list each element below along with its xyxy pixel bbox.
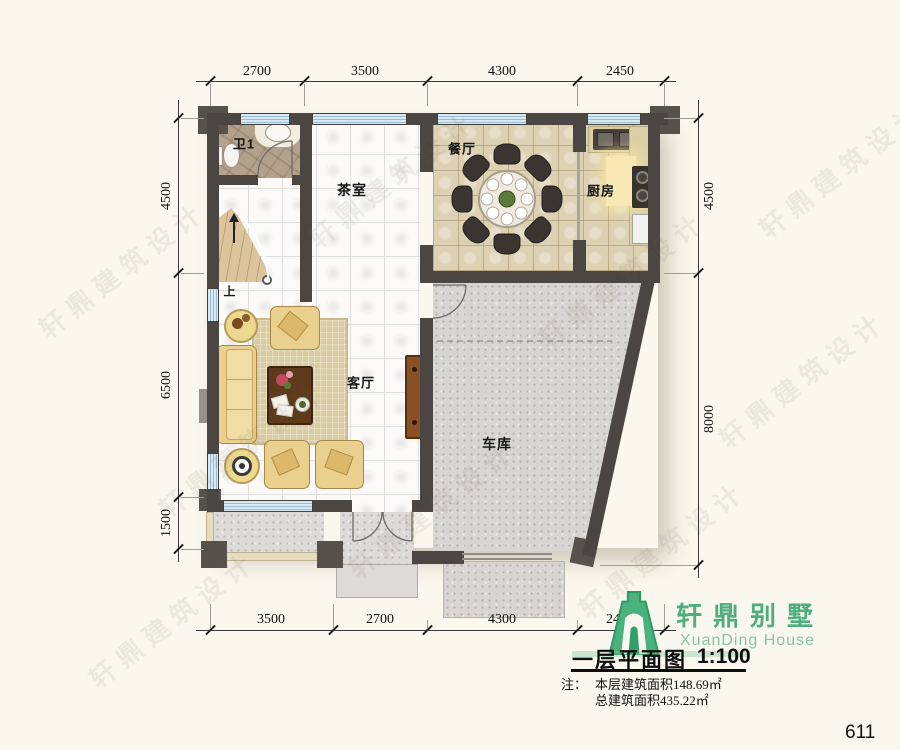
window (240, 113, 290, 125)
wall-segment (573, 113, 586, 152)
dimension-line-left (178, 100, 179, 562)
wall-segment (214, 175, 258, 185)
dimension-label: 2700 (366, 612, 394, 628)
wall-segment (313, 500, 352, 512)
watermark-text: 轩鼎建筑设计 (710, 301, 894, 456)
window (223, 500, 313, 512)
dining-chair (494, 234, 521, 255)
dimension-label: 4300 (488, 64, 516, 80)
drawing-scale: 1:100 (697, 645, 751, 669)
wall-segment (207, 113, 219, 288)
title-underline (571, 669, 746, 672)
extension-line (333, 604, 334, 628)
extension-line (600, 565, 696, 566)
note-line-2: 总建筑面积435.22㎡ (595, 693, 709, 709)
wall-segment (420, 318, 433, 512)
center-dish (499, 191, 516, 208)
extension-line (210, 84, 211, 106)
room-label-living: 客厅 (347, 373, 375, 392)
vanity-basin (265, 123, 291, 142)
teacup (242, 314, 250, 322)
room-label-kitchen: 厨房 (587, 181, 615, 200)
place-setting (481, 193, 494, 206)
porch-column (317, 541, 343, 568)
dimension-label: 2700 (243, 64, 271, 80)
stair-newel-post (262, 275, 272, 285)
stair-up-arrow (233, 220, 235, 243)
sliding-door-line (577, 152, 580, 240)
dining-set (449, 141, 565, 257)
dimension-label: 1500 (159, 509, 175, 537)
dimension-label: 4500 (159, 182, 175, 210)
brand-name-chinese: 轩鼎别墅 (676, 596, 824, 633)
wall-segment (207, 322, 219, 453)
extension-line (181, 497, 204, 498)
teapot (232, 318, 243, 329)
place-setting (501, 213, 514, 226)
dimension-line-right (698, 100, 699, 578)
extension-line (181, 549, 204, 550)
console-handle (412, 420, 417, 425)
dimension-label: 3500 (257, 612, 285, 628)
extension-line (427, 84, 428, 106)
note-line-1: 本层建筑面积148.69㎡ (595, 677, 722, 693)
console-handle (412, 367, 417, 372)
note-label: 注： (561, 677, 587, 693)
wall-segment (573, 240, 586, 283)
garage-door-line (462, 558, 552, 560)
watermark-text: 轩鼎建筑设计 (30, 191, 214, 346)
place-setting (501, 173, 514, 186)
porch-floor (214, 512, 324, 552)
place-setting (521, 193, 534, 206)
dining-chair (494, 144, 521, 165)
window (587, 113, 641, 125)
room-label-garage: 车库 (482, 434, 512, 454)
window (207, 288, 219, 322)
extension-line (664, 273, 696, 274)
room-label-bath: 卫1 (233, 134, 255, 153)
garage-apron (443, 561, 565, 618)
wall-segment (300, 113, 312, 302)
dining-chair (452, 186, 473, 213)
extension-line (181, 273, 204, 274)
window (312, 113, 407, 125)
extension-line (181, 118, 204, 119)
dimension-label: 8000 (702, 405, 718, 433)
wall-segment (412, 551, 464, 564)
extension-line (210, 604, 211, 628)
room-label-tea: 茶室 (337, 180, 367, 200)
stair-up-arrowhead (229, 213, 239, 222)
dimension-line-top (196, 81, 676, 82)
dimension-label: 4300 (488, 612, 516, 628)
wall-segment (207, 500, 223, 512)
garage-door-line (462, 553, 552, 555)
dimension-label: 3500 (351, 64, 379, 80)
flower (286, 371, 293, 378)
room-label-dining: 餐厅 (448, 139, 476, 158)
dimension-label: 6500 (159, 371, 175, 399)
sink-basin-left (597, 132, 614, 147)
stair-up-label: 上 (223, 283, 236, 300)
extension-line (664, 84, 665, 106)
extension-line (577, 84, 578, 106)
floor-plan-page: 卫1 茶室 餐厅 厨房 客厅 车库 上 2700 3500 4300 2450 (0, 0, 900, 750)
extension-line (304, 84, 305, 106)
dimension-label: 4500 (702, 182, 718, 210)
page-number: 611 (845, 722, 875, 744)
dining-chair (542, 186, 563, 213)
watermark-text: 轩鼎建筑设计 (80, 541, 264, 696)
watermark-text: 轩鼎建筑设计 (750, 91, 900, 246)
wall-segment (292, 175, 312, 185)
extension-line (664, 118, 696, 119)
dimension-label: 2450 (606, 64, 634, 80)
